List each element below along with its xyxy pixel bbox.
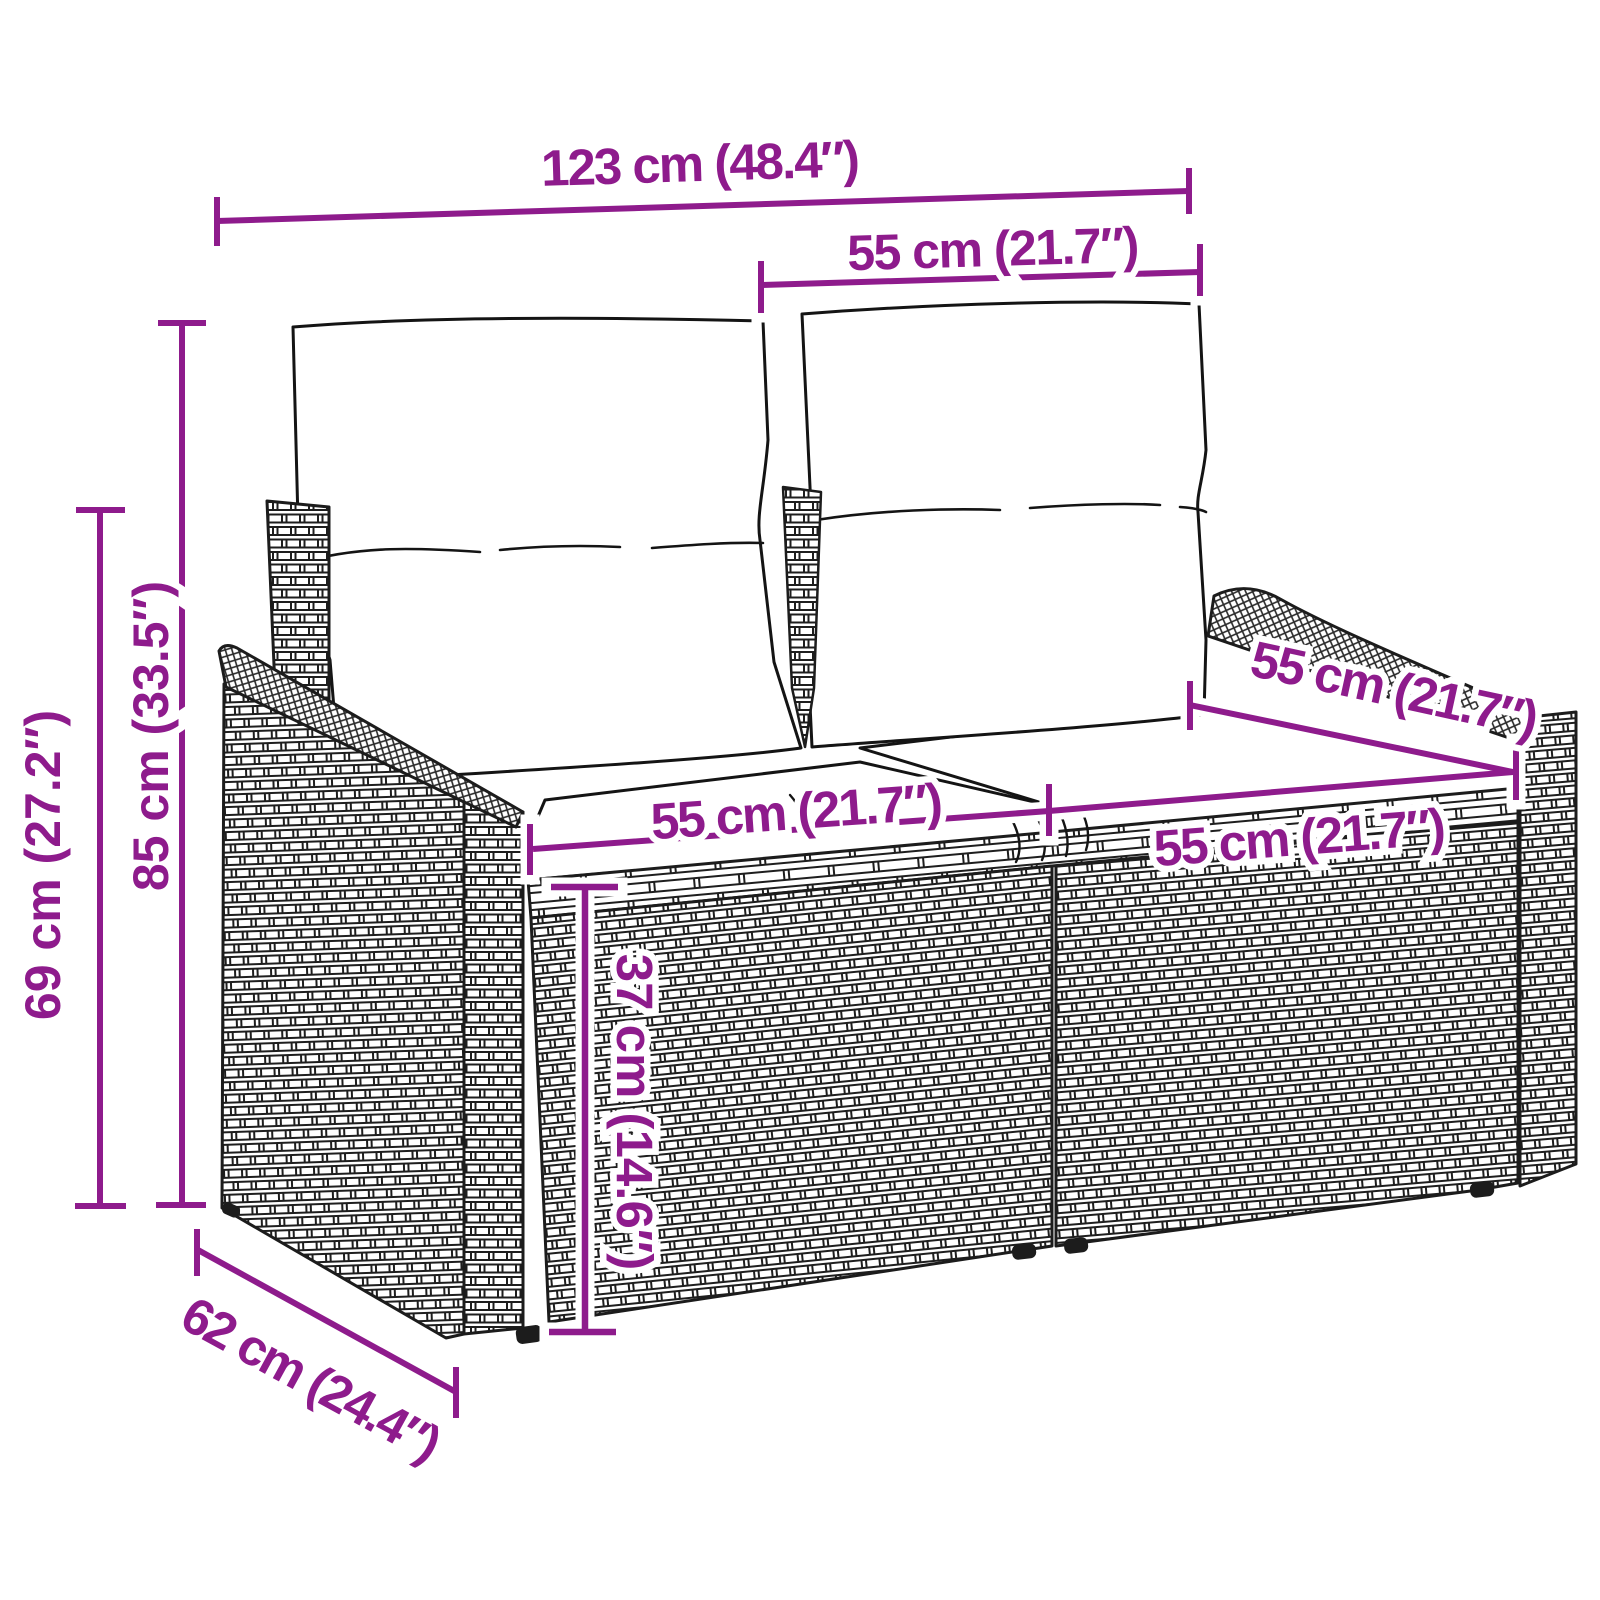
svg-text:69 cm (27.2″): 69 cm (27.2″): [15, 710, 71, 1020]
svg-text:85 cm (33.5″): 85 cm (33.5″): [123, 581, 179, 891]
svg-text:55 cm (21.7″): 55 cm (21.7″): [846, 217, 1138, 282]
svg-text:37 cm (14.6″): 37 cm (14.6″): [606, 954, 663, 1270]
svg-text:123 cm (48.4″): 123 cm (48.4″): [540, 130, 858, 197]
